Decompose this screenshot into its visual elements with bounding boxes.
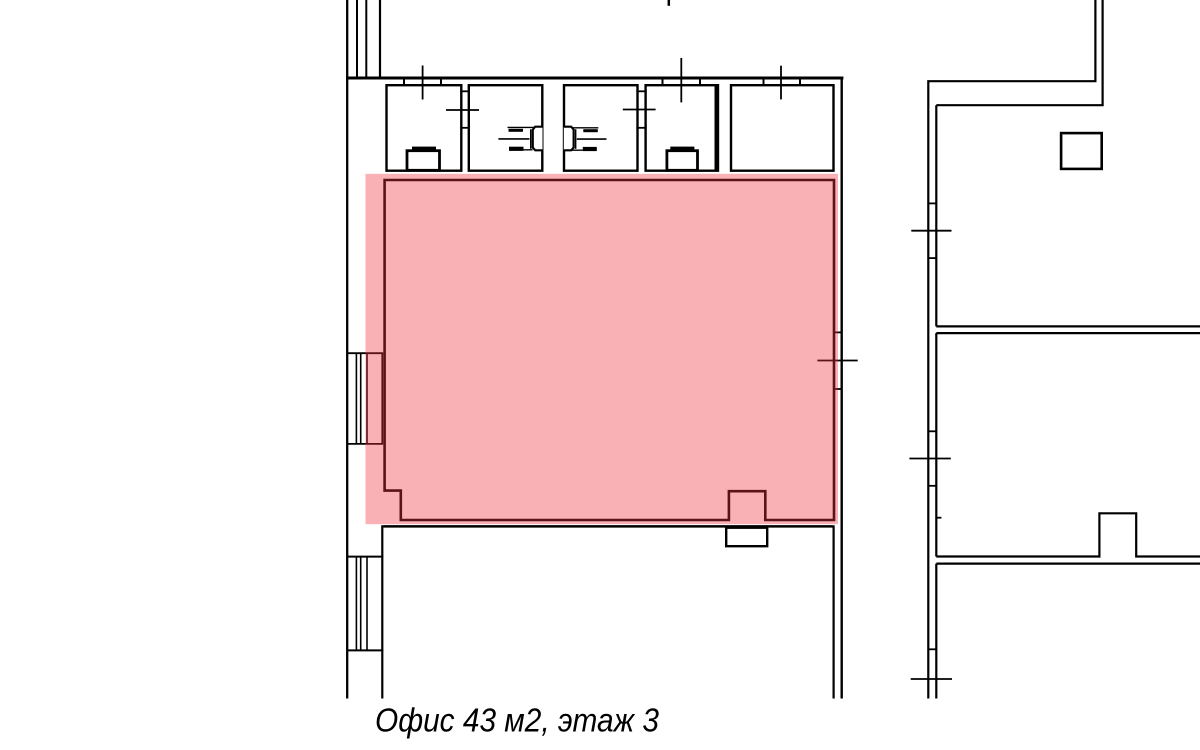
- svg-text:Офис 43 м2, этаж 3: Офис 43 м2, этаж 3: [375, 702, 660, 739]
